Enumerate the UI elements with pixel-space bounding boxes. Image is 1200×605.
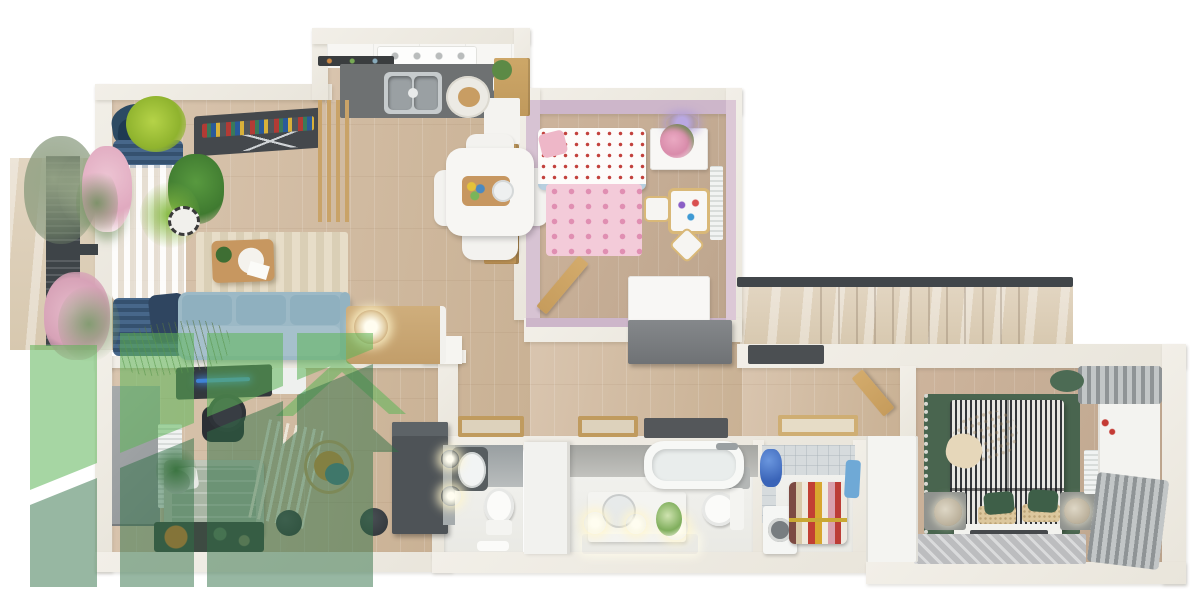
stairs-doormat [748,345,824,364]
vanity-light [626,514,646,534]
hall-gray-cabinet [628,320,732,364]
balcony-crossbar [46,244,98,255]
bath-faucet [716,443,738,450]
board-center [458,87,480,107]
office-west-wall [95,350,112,572]
wc-washbasin [458,452,486,488]
coffee-table [211,239,274,283]
blue-laundry-basin [760,449,782,487]
green-pillow [983,491,1015,516]
double-sink [384,72,442,114]
blue-towel [844,460,861,499]
green-pillow [1027,489,1058,513]
kitchen-top-wall [312,28,530,44]
wc-sconce-light [441,486,461,506]
doormat-bathroom [578,416,638,437]
gaming-chair [198,394,252,442]
tall-grass-plant [156,448,196,492]
gray-foot-rug [914,534,1086,564]
green-pouf [1050,370,1084,392]
bathtub-interior [652,449,736,481]
hanging-rattan-chair [304,440,354,494]
open-book [247,261,270,280]
table-plate [492,180,514,202]
sphere-floor-lamp [276,510,302,536]
toilet-tank [730,488,744,530]
office-south-wall [95,552,452,572]
vanity-flowers [656,502,682,536]
bathroom-door [524,442,570,554]
keyboard-led [196,377,250,383]
living-room-top-wall [95,84,332,100]
chair-seat [208,394,246,432]
dresser-flowers [660,124,694,158]
doormat-wc [458,416,524,437]
fern-pot [168,206,200,236]
stairs-steps [820,286,1020,348]
round-lamp-left [934,498,962,526]
wc-mat [477,541,509,551]
toilet-tank [486,520,512,535]
kids-stool [644,196,670,222]
dining-table [446,148,534,236]
ball-lamp [354,310,388,344]
greenery-top [76,168,118,238]
sofa-back-cushion [236,295,286,325]
wc-sconce-light [441,450,459,468]
rack-bar [789,518,847,522]
gray-wardrobe [112,386,160,526]
wc-toilet [484,488,514,536]
heart-rug [546,184,642,256]
x-frame [238,131,302,151]
stairs-handrail [737,277,1073,287]
kids-white-storage [628,276,710,322]
sofa-back-cushion [290,295,340,325]
dark-doormat [644,418,728,438]
kids-radiator [710,166,723,240]
drying-rack-clothes [789,482,847,544]
round-lamp-right [1064,498,1090,524]
desk-side-unit [272,368,306,394]
kids-play-table [668,188,710,234]
slat-partition [318,100,352,222]
doormat-laundry [778,415,858,436]
dark-wardrobe [392,422,448,534]
table-bottles [466,180,488,202]
sphere-floor-lamp [360,508,388,536]
vanity-light [584,512,606,534]
table-plant [215,246,232,263]
kids-bed [538,128,646,190]
kids-pillow [537,129,568,159]
gray-curtain-top [1078,366,1162,404]
gray-curtain-bottom [1087,472,1169,570]
greenery-bottom [58,286,120,362]
bright-palm-plant [126,96,186,152]
kitchen-plant [492,60,512,80]
right-wing-east-wall [1162,344,1186,584]
bath-toilet [702,486,746,532]
master-bedroom-west-wall [900,366,916,444]
office-rug [154,522,264,552]
chair-cushion-teal [325,463,349,485]
faucet [408,88,418,98]
geranium-plant [1094,412,1122,448]
laundry-east-wall [853,440,867,562]
floor-plan-render [0,0,1200,605]
toilet-bowl [484,488,514,524]
white-wardrobe [866,436,918,562]
bathroom-south-wall [432,552,875,573]
kids-wall-face-north [526,100,726,114]
kids-wall-face-east [726,100,736,320]
round-serving-board [446,76,490,118]
